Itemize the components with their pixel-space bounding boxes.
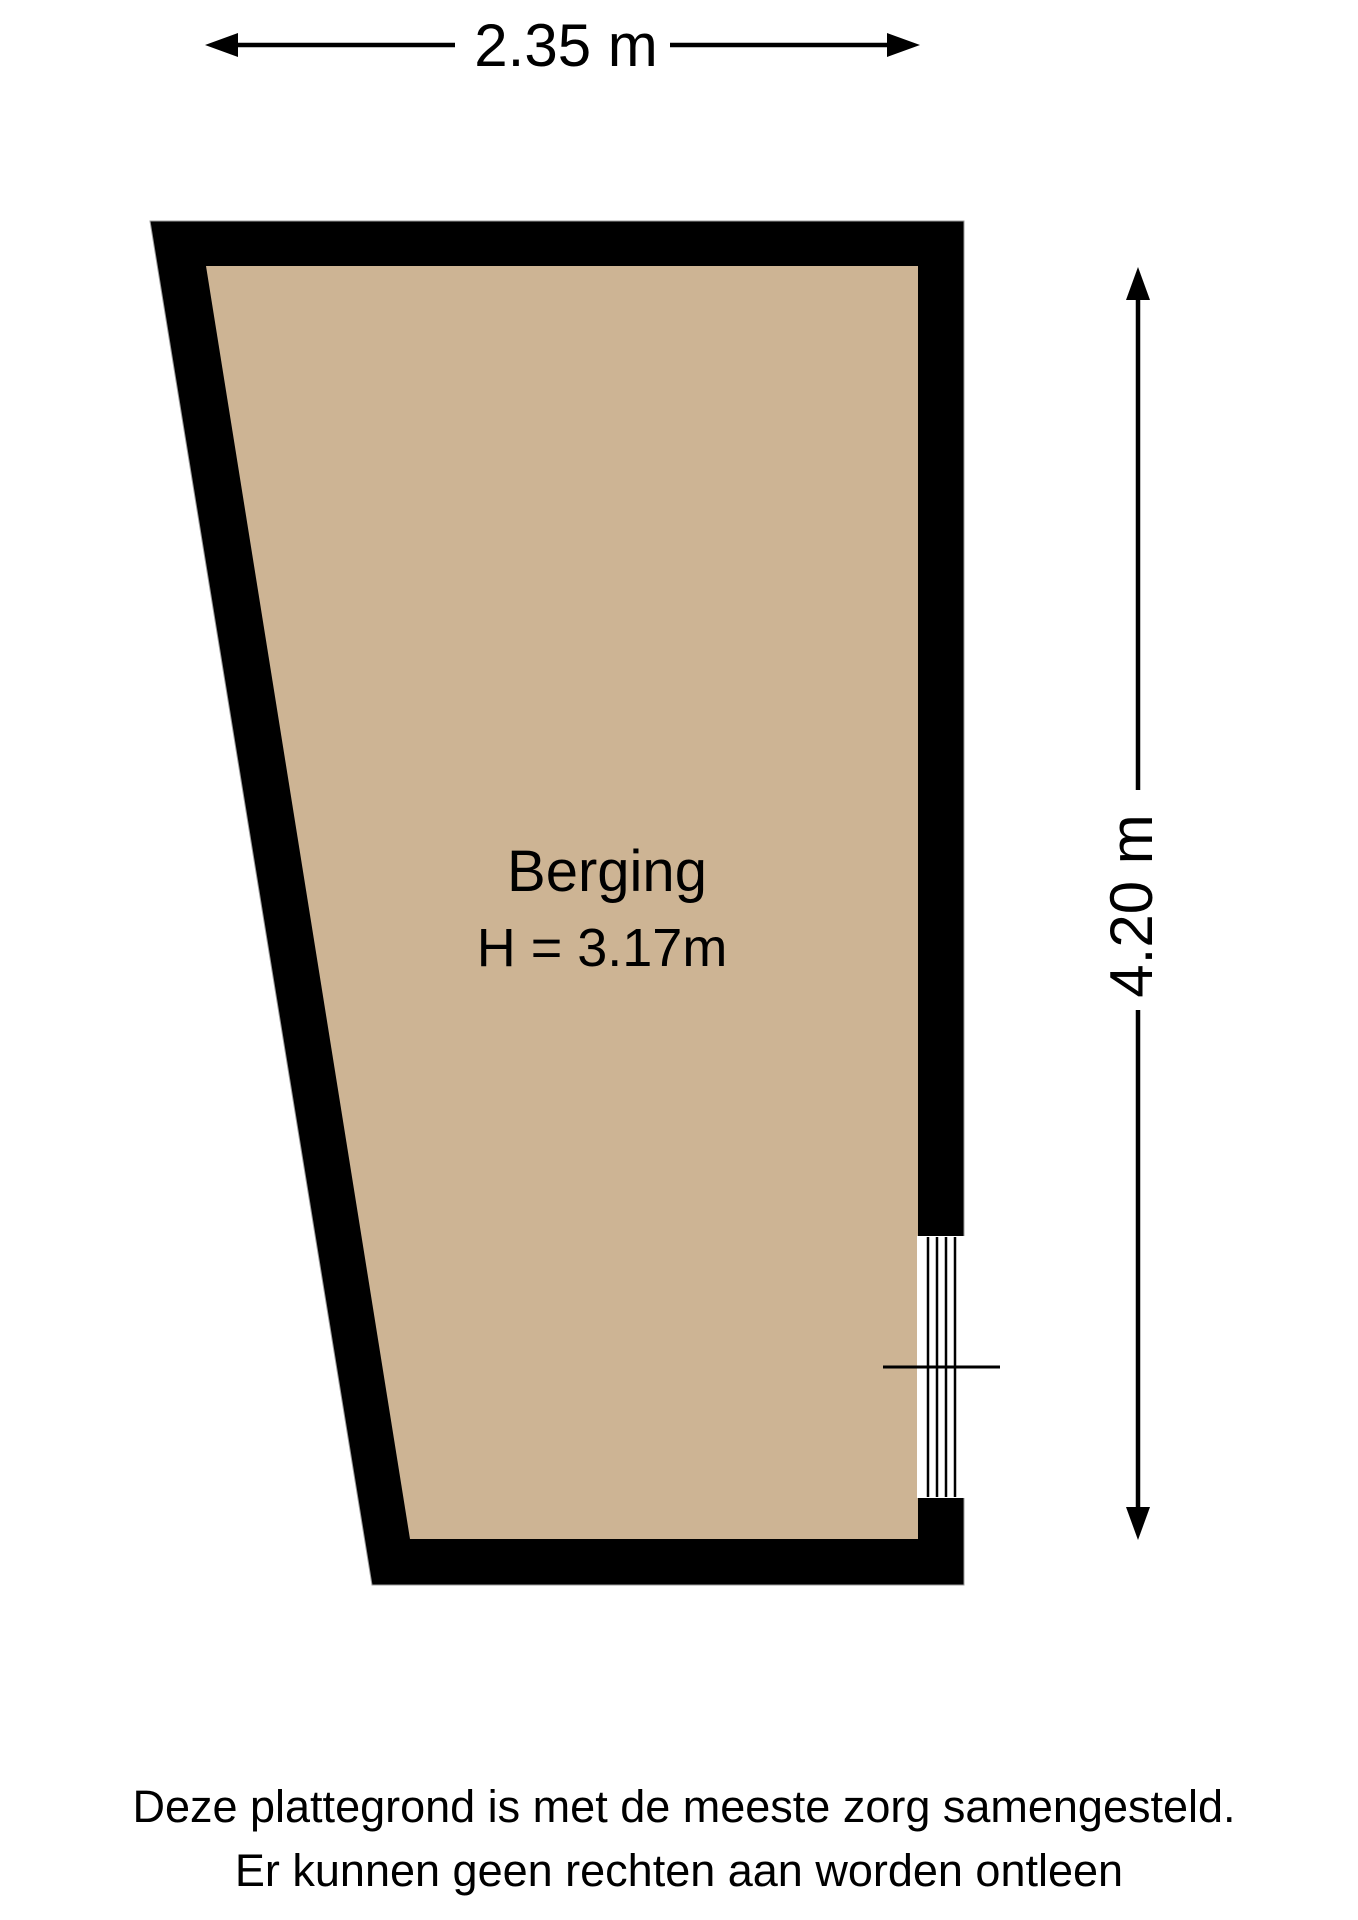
floor-plan-page: Berging H = 3.17m 2.35 m 4.20 m Deze pla… <box>0 0 1358 1920</box>
room-name-label: Berging <box>507 839 707 904</box>
width-dimension-label: 2.35 m <box>474 12 657 79</box>
height-dimension: 4.20 m <box>1098 267 1165 1540</box>
arrowhead-up-icon <box>1126 267 1150 300</box>
room-berging: Berging H = 3.17m <box>150 221 1000 1585</box>
footer-line-2: Er kunnen geen rechten aan worden ontlee… <box>235 1845 1123 1896</box>
room-ceiling-height-label: H = 3.17m <box>477 918 728 978</box>
floor-plan-drawing: Berging H = 3.17m 2.35 m 4.20 m Deze pla… <box>0 0 1358 1920</box>
arrowhead-left-icon <box>205 33 238 57</box>
arrowhead-down-icon <box>1126 1507 1150 1540</box>
width-dimension: 2.35 m <box>205 12 920 79</box>
arrowhead-right-icon <box>887 33 920 57</box>
footer-disclaimer: Deze plattegrond is met de meeste zorg s… <box>132 1781 1235 1896</box>
footer-line-1: Deze plattegrond is met de meeste zorg s… <box>132 1781 1235 1832</box>
height-dimension-label: 4.20 m <box>1098 814 1165 997</box>
